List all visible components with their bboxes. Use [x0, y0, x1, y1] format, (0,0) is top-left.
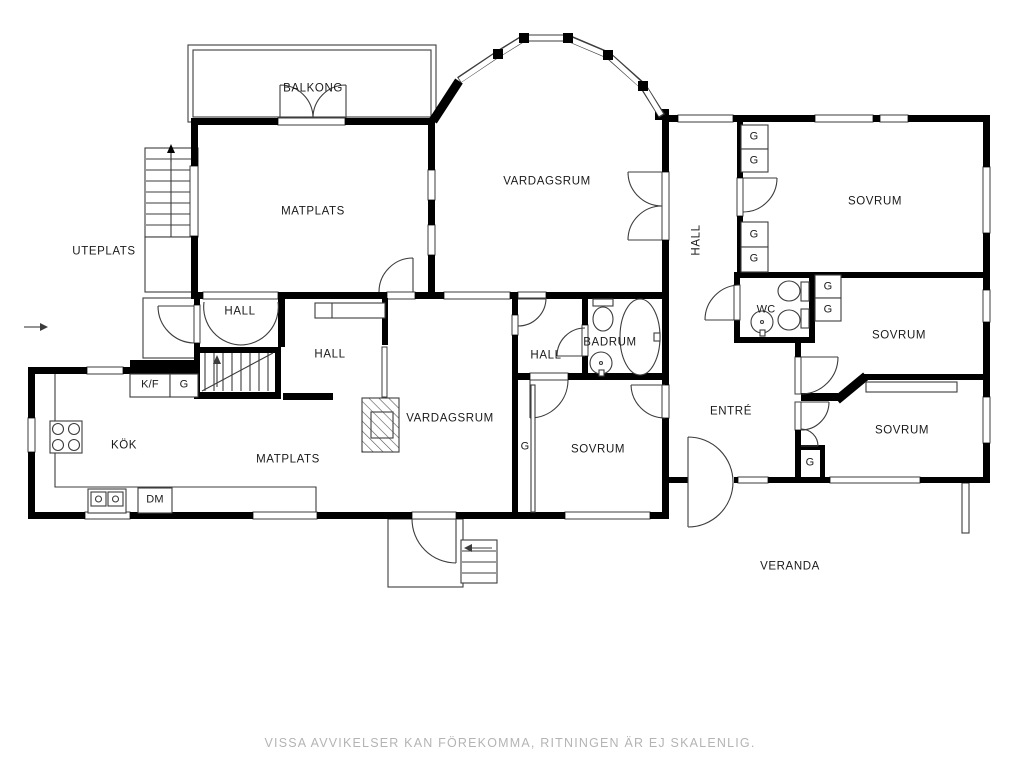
room-label-uteplats: UTEPLATS — [72, 246, 135, 258]
closet-label-g4: G — [750, 254, 759, 265]
porch-steps — [388, 519, 497, 587]
interior-stairs — [202, 353, 273, 391]
fixture-label-kf: K/F — [141, 380, 159, 391]
room-label-sovrum-ne: SOVRUM — [848, 196, 902, 208]
entry-arrow — [24, 323, 48, 331]
room-label-matplats-lower: MATPLATS — [256, 454, 320, 466]
room-label-sovrum-se: SOVRUM — [875, 425, 929, 437]
room-label-kok: KÖK — [111, 440, 137, 452]
closet-label-g8: G — [806, 458, 815, 469]
closet-label-g3: G — [750, 230, 759, 241]
wc-toilet-icon — [801, 282, 809, 301]
room-label-sovrum-east: SOVRUM — [872, 330, 926, 342]
room-label-vardagsrum-lower: VARDAGSRUM — [406, 413, 494, 425]
closet-label-g7: G — [521, 442, 530, 453]
closet-label-g2: G — [750, 156, 759, 167]
disclaimer-text: VISSA AVVIKELSER KAN FÖREKOMMA, RITNINGE… — [264, 737, 755, 750]
room-label-badrum: BADRUM — [583, 337, 636, 349]
room-label-vardagsrum-upper: VARDAGSRUM — [503, 176, 591, 188]
room-label-sovrum-mid: SOVRUM — [571, 444, 625, 456]
chimney-block — [362, 398, 399, 452]
floor-plan-page: BALKONG MATPLATS VARDAGSRUM HALL SOVRUM … — [0, 0, 1024, 768]
bay-window — [459, 33, 662, 116]
room-label-hall-middle: HALL — [314, 349, 345, 361]
room-label-veranda: VERANDA — [760, 561, 820, 573]
room-label-hall-upper: HALL — [691, 224, 703, 255]
room-label-wc: WC — [757, 305, 776, 316]
closet-label-g9: G — [180, 380, 189, 391]
wc-bidet-icon — [801, 309, 809, 328]
closet-label-g5: G — [824, 282, 833, 293]
room-label-balkong: BALKONG — [283, 83, 343, 95]
room-label-entre: ENTRÉ — [710, 406, 752, 418]
closet-label-g1: G — [750, 132, 759, 143]
room-label-hall-small: HALL — [530, 350, 561, 362]
room-label-hall-stair: HALL — [224, 306, 255, 318]
stove-icon — [50, 421, 82, 453]
closet-label-g6: G — [824, 305, 833, 316]
toilet-icon — [593, 299, 613, 306]
room-label-matplats-upper: MATPLATS — [281, 206, 345, 218]
fixture-label-dm: DM — [146, 495, 164, 506]
veranda-edge — [962, 483, 969, 533]
